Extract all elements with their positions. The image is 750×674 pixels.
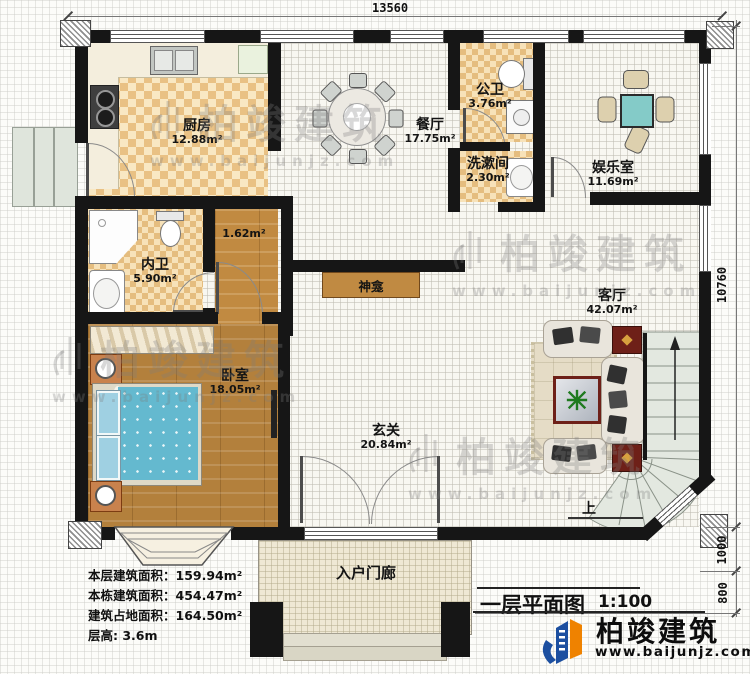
dimension-right-mid: 1000 — [715, 530, 729, 570]
wall-kitchen-dining — [268, 43, 281, 151]
room-label-private-wc: 内卫5.90m² — [133, 257, 176, 286]
wall-exterior-left — [75, 196, 88, 540]
wall-bedroom-top-stub — [262, 312, 283, 324]
entry-threshold — [304, 527, 438, 540]
entry-door-left-leaf — [300, 456, 303, 523]
room-label-entertainment: 娱乐室11.69m² — [587, 160, 638, 189]
stat-building-area: 本栋建筑面积：454.47m² — [88, 586, 242, 606]
game-table — [620, 94, 654, 128]
room-label-living: 客厅42.07m² — [586, 288, 637, 317]
plan-scale: 1:100 — [598, 592, 652, 612]
column — [60, 20, 91, 47]
kitchen-side-door-leaf — [86, 143, 89, 196]
window — [110, 30, 205, 43]
private-wc-toilet-bowl — [160, 220, 181, 247]
porch-column — [250, 602, 283, 657]
bed-mattress — [118, 387, 198, 480]
window — [260, 30, 354, 43]
window — [390, 30, 444, 43]
dining-table — [328, 88, 386, 146]
stair-wall — [643, 333, 647, 460]
room-label-porch: 入户门廊 — [336, 565, 396, 582]
wall-entertainment-bottom — [590, 192, 711, 205]
side-step-line — [33, 128, 35, 206]
lamp — [95, 358, 116, 379]
cutting-board — [238, 45, 268, 74]
room-label-dining: 餐厅17.75m² — [404, 117, 455, 146]
porch-step-2 — [283, 646, 447, 661]
washing-machine-drum — [513, 109, 530, 126]
stairs-up-label: 上 — [582, 498, 596, 518]
wall-public-wc-left — [448, 43, 460, 110]
dimension-ext — [712, 26, 740, 27]
porch-column — [441, 602, 470, 657]
bay-window — [103, 525, 243, 571]
dimension-line-top — [68, 16, 723, 17]
dimension-right-bottom: 800 — [716, 576, 730, 610]
bed-pillow — [97, 436, 120, 480]
plant-icon — [565, 388, 589, 412]
coffee-table — [553, 376, 601, 424]
stairs-up-underline — [568, 517, 643, 519]
sink-basin — [175, 50, 194, 71]
sink-basin — [154, 50, 173, 71]
wall-wc-divider — [460, 142, 510, 151]
nightstand — [90, 354, 122, 385]
column — [68, 521, 102, 549]
brand-site: www.baijunjz.com — [595, 644, 750, 660]
window — [699, 63, 711, 155]
room-label-washroom: 洗漱间2.30m² — [466, 156, 509, 185]
end-table-star — [621, 334, 632, 345]
room-label-public-wc: 公卫3.76m² — [468, 82, 511, 111]
window — [583, 30, 685, 43]
porch-floor — [258, 540, 472, 635]
end-table-star — [621, 452, 632, 463]
dining-table-center — [343, 103, 371, 131]
entertainment-door-leaf — [551, 157, 554, 197]
entry-door-right-leaf — [437, 456, 440, 523]
sofa-top — [543, 320, 613, 358]
wall-kitchen-bottom — [75, 196, 293, 209]
wall-private-wc-right — [203, 209, 215, 272]
sofa-bottom — [543, 438, 607, 474]
private-wc-sink — [89, 270, 125, 318]
end-table — [612, 444, 642, 472]
dimension-right-height: 10760 — [715, 263, 729, 307]
bedroom-door-leaf — [216, 262, 219, 314]
burner — [96, 90, 115, 109]
shrine-cabinet: 神龛 — [322, 272, 420, 298]
end-table — [612, 326, 642, 354]
nightstand — [90, 481, 122, 512]
wall-bedroom-top — [75, 312, 218, 324]
side-step-line — [53, 128, 55, 206]
wall-bedroom-right — [278, 324, 290, 527]
room-label-bedroom: 卧室18.05m² — [209, 368, 260, 397]
game-chair — [656, 97, 675, 123]
wall-washroom-bottom — [498, 202, 545, 212]
dimension-top-width: 13560 — [372, 1, 408, 15]
dining-chair — [389, 110, 404, 128]
lamp — [95, 485, 116, 506]
wall-shrine — [283, 260, 465, 272]
wardrobe — [90, 326, 214, 354]
shrine-label: 神龛 — [358, 276, 383, 295]
stat-footprint-area: 建筑占地面积：164.50m² — [88, 606, 242, 626]
window — [699, 205, 711, 272]
dimension-ext — [700, 571, 740, 572]
wall-exterior-left — [75, 43, 88, 143]
dining-chair — [349, 73, 367, 88]
room-label-kitchen: 厨房12.88m² — [171, 118, 222, 147]
burner — [96, 108, 115, 127]
sofa-main — [601, 357, 645, 444]
game-chair — [598, 97, 617, 123]
washroom-sink-bowl — [510, 165, 533, 190]
dining-chair — [313, 110, 328, 128]
brand-logo-icon — [536, 612, 592, 670]
game-chair — [623, 70, 649, 89]
floor-plan-canvas: 上 — [0, 0, 750, 674]
bed-pillow — [97, 391, 120, 435]
kitchen-sink — [150, 46, 198, 75]
room-label-foyer: 玄关20.84m² — [360, 423, 411, 452]
tv — [271, 390, 277, 438]
area-stats: 本层建筑面积：159.94m² 本栋建筑面积：454.47m² 建筑占地面积：1… — [88, 566, 242, 646]
stat-floor-area: 本层建筑面积：159.94m² — [88, 566, 242, 586]
dining-chair — [349, 149, 367, 164]
shower-drain — [98, 219, 106, 227]
game-table-set — [596, 70, 674, 148]
wall-public-wc-right — [533, 43, 545, 212]
side-steps — [12, 127, 78, 207]
stove — [90, 85, 119, 129]
corridor-area-label: 1.62m² — [222, 228, 265, 241]
private-wc-sink-bowl — [93, 278, 120, 309]
dimension-ext — [706, 527, 740, 528]
wall-public-wc-left — [448, 148, 460, 212]
dining-set — [305, 65, 409, 169]
wall-exterior-bottom — [436, 527, 648, 540]
stat-floor-height: 层高: 3.6m — [88, 626, 242, 646]
window — [483, 30, 569, 43]
